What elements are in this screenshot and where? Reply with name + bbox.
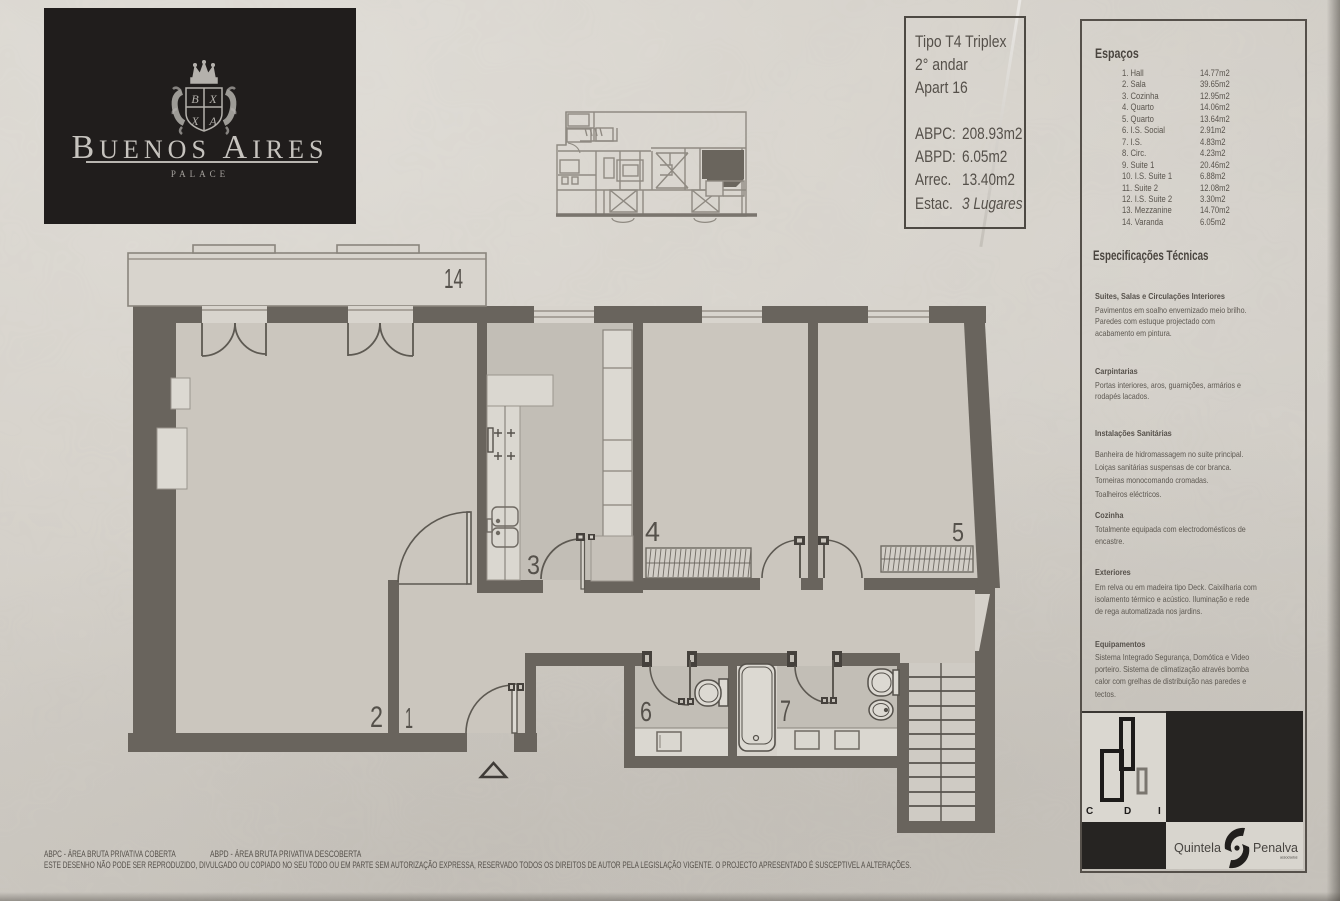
svg-text:X: X <box>190 114 199 128</box>
svg-text:2: 2 <box>370 701 383 734</box>
svg-text:5: 5 <box>952 517 964 547</box>
svg-text:1: 1 <box>405 703 413 735</box>
svg-text:D: D <box>1124 806 1131 817</box>
svg-text:7: 7 <box>780 695 791 728</box>
svg-text:Quintela: Quintela <box>1174 841 1221 855</box>
svg-text:6: 6 <box>640 696 652 727</box>
svg-text:I: I <box>1158 806 1161 817</box>
svg-text:associados: associados <box>1280 856 1298 860</box>
svg-text:A: A <box>208 114 217 128</box>
svg-text:X: X <box>208 92 217 106</box>
svg-text:4: 4 <box>645 516 660 547</box>
svg-text:C: C <box>1086 806 1093 817</box>
svg-text:Penalva: Penalva <box>1253 841 1298 855</box>
svg-text:3: 3 <box>527 550 540 580</box>
svg-text:14: 14 <box>444 263 463 294</box>
svg-text:B: B <box>191 92 199 106</box>
